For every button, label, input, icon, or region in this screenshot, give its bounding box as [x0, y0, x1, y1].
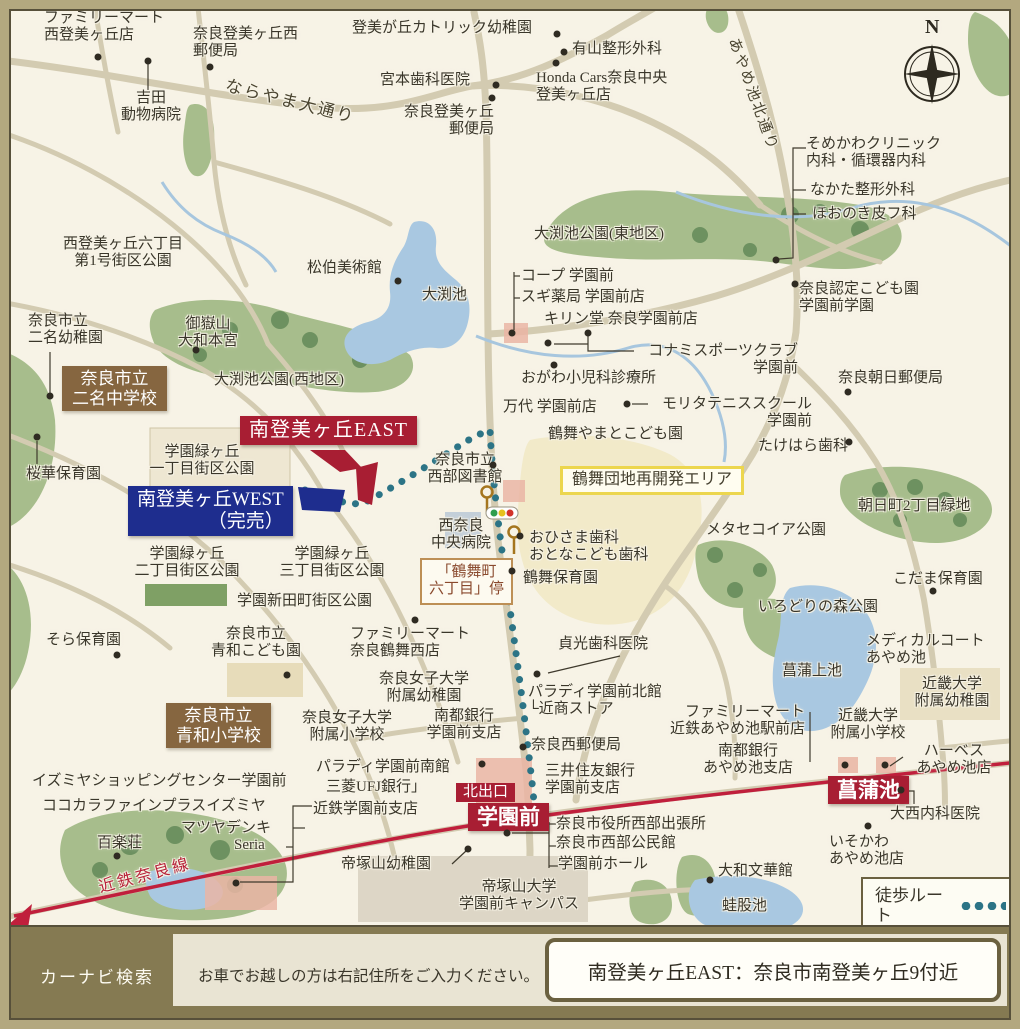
label-matsuya-denki: マツヤデンキ: [181, 820, 271, 837]
badge-seiwa-elementary: 奈良市立 青和小学校: [166, 703, 271, 748]
label-city-office-seibu: 奈良市役所西部出張所: [556, 816, 706, 833]
label-narajoshi-kindergarten: 奈良女子大学 附属幼稚園: [368, 671, 480, 706]
label-naráyama-odori-road: ならやま大通り: [223, 76, 357, 127]
poi-dot: [930, 588, 937, 595]
car-navi-notice: お車でお越しの方は右記住所をご入力ください。: [198, 964, 539, 986]
poi-dot: [233, 880, 240, 887]
label-ayameike-kita-dori-road: あやめ池北通り: [724, 36, 781, 154]
label-nara-nintei-kodomoen: 奈良認定こども園 学園前学園: [799, 281, 919, 316]
label-obuchi-pond: 大渕池: [422, 287, 467, 304]
label-paradis-minamikan: パラディ学園前南館: [316, 759, 450, 776]
label-tezukayama-univ: 帝塚山大学 学園前キャンパス: [446, 879, 592, 914]
label-kintetsu-gakuenmae-branch: 近鉄学園前支店: [313, 801, 418, 818]
poi-dot: [95, 54, 102, 61]
label-obuchi-park-west: 大渕池公園(西地区): [214, 372, 344, 389]
poi-dot: [509, 568, 516, 575]
badge-nimyo-junior-high: 奈良市立 二名中学校: [62, 366, 167, 411]
station-gakuenmae: 学園前: [468, 803, 549, 831]
poi-dot: [489, 95, 496, 102]
poi-dot: [842, 762, 849, 769]
poi-dot: [561, 49, 568, 56]
badge-minamitomigaoka-east: 南登美ヶ丘EAST: [240, 416, 417, 445]
box-tsurumaicho-6-busstop: 「鶴舞町 六丁目」停: [420, 558, 513, 605]
label-kintetsu-nara-line: 近鉄奈良線: [97, 855, 194, 898]
poi-dot: [412, 617, 419, 624]
label-kindai-elementary: 近畿大学 附属小学校: [820, 708, 916, 743]
label-miyamoto-dental: 宮本歯科医院: [380, 72, 470, 89]
label-kirindo: キリン堂 奈良学園前店: [544, 311, 698, 328]
label-nanto-bank-gakuenmae: 南都銀行 学園前支店: [420, 708, 508, 743]
badge-kita-deguchi: 北出口: [456, 783, 515, 802]
label-takehara-dental: たけはら歯科: [758, 438, 848, 455]
poi-dot: [898, 787, 905, 794]
label-honda-cars: Honda Cars奈良中央 登美ヶ丘店: [536, 70, 667, 105]
poi-dot: [882, 762, 889, 769]
poi-dot: [520, 744, 527, 751]
walk-route-legend-dots: [960, 902, 1006, 910]
label-shohaku-museum: 松伯美術館: [307, 260, 382, 277]
label-nakata-seikei: なかた整形外科: [810, 182, 915, 199]
label-seiwa-kodomoen: 奈良市立 青和こども園: [200, 626, 312, 661]
label-tomigaoka-catholic-kindergarten: 登美が丘カトリック幼稚園: [352, 20, 532, 37]
label-sugi-pharmacy: スギ薬局 学園前店: [521, 289, 645, 306]
poi-dot: [479, 761, 486, 768]
label-onishi-clinic: 大西内科医院: [890, 806, 980, 823]
label-mufg-bank: 三菱UFJ銀行」: [326, 779, 426, 796]
label-seibu-kominkan: 奈良市西部公民館: [556, 835, 676, 852]
label-ogawa-pediatrics: おがわ小児科診療所: [521, 370, 656, 387]
label-asahicho-2-ryokuchi: 朝日町2丁目緑地: [858, 498, 971, 515]
label-coop-gakuenmae: コープ 学園前: [521, 268, 614, 285]
label-narajoshi-elementary: 奈良女子大学 附属小学校: [291, 710, 403, 745]
poi-dot: [845, 389, 852, 396]
site-address-box: 南登美ヶ丘EAST：奈良市南登美ヶ丘9付近: [545, 938, 1001, 1002]
label-hoonoki-hifuka: ほおのき皮フ科: [812, 206, 917, 223]
poi-dot: [207, 64, 214, 71]
label-nara-tomigaoka-nishi-post: 奈良登美ヶ丘西 郵便局: [193, 26, 298, 61]
poi-dot: [145, 58, 152, 65]
poi-dot: [624, 401, 631, 408]
label-obuchi-park-east: 大渕池公園(東地区): [534, 226, 664, 243]
label-kodama-hoikuen: こだま保育園: [893, 571, 983, 588]
poi-dot: [193, 347, 200, 354]
label-ariyama-seikei: 有山整形外科: [572, 41, 662, 58]
label-irodori-forest-park: いろどりの森公園: [758, 599, 878, 616]
label-nanto-bank-ayameike: 南都銀行 あやめ池支店: [694, 743, 802, 778]
label-cocokara-fine: ココカラファインプラスイズミヤ: [42, 798, 266, 815]
label-medical-court-ayameike: メディカルコート あやめ池: [866, 633, 985, 668]
poi-dot: [551, 362, 558, 369]
car-navi-label: カーナビ検索: [40, 963, 154, 988]
label-smbc: 三井住友銀行 学園前支店: [545, 763, 635, 798]
access-map: ファミリーマート 西登美ヶ丘店奈良登美ヶ丘西 郵便局吉田 動物病院ならやま大通り…: [0, 0, 1020, 1029]
label-mitakesan-yamato-hongu: 御嶽山 大和本宮: [166, 316, 250, 351]
poi-dot: [114, 853, 121, 860]
label-familymart-tsurumai-nishi: ファミリーマート 奈良鶴舞西店: [350, 626, 470, 661]
label-gakuen-midorigaoka-2-park: 学園緑ヶ丘 二丁目街区公園: [124, 546, 250, 581]
label-tsurumai-yamato-kodomoen: 鶴舞やまとこども園: [548, 426, 683, 443]
label-gakuenmae-hall: 学園前ホール: [558, 856, 648, 873]
poi-dot: [47, 393, 54, 400]
poi-dot: [114, 652, 121, 659]
poi-dot: [585, 330, 592, 337]
label-sadamitsu-dental: 貞光歯科医院: [558, 636, 648, 653]
label-ouka-hoikuen: 桜華保育園: [26, 466, 101, 483]
label-seibu-library: 奈良市立 西部図書館: [412, 452, 518, 487]
label-seria: Seria: [234, 837, 265, 854]
label-ohisama-dental: おひさま歯科 おとなこども歯科: [529, 530, 649, 565]
poi-dot: [545, 340, 552, 347]
label-izumiya-sc: イズミヤショッピングセンター学園前: [32, 773, 287, 790]
label-gakuen-midorigaoka-1-park: 学園緑ヶ丘 一丁目街区公園: [140, 444, 264, 479]
label-harves-ayameike: ハーベス あやめ池店: [901, 743, 1007, 778]
label-paradis-kitakan: パラディ学園前北館 └近商ストア: [528, 684, 662, 719]
poi-dot: [395, 278, 402, 285]
poi-dot: [792, 281, 799, 288]
label-nimyo-kindergarten: 奈良市立 二名幼稚園: [28, 313, 103, 348]
label-familymart-ayameike: ファミリーマート 近鉄あやめ池駅前店: [653, 704, 805, 739]
poi-dot: [493, 82, 500, 89]
poi-dot: [490, 462, 497, 469]
label-nishinara-chuo-hospital: 西奈良 中央病院: [422, 518, 500, 553]
label-gakuen-shindencho-park: 学園新田町街区公園: [237, 593, 372, 610]
poi-dot: [846, 439, 853, 446]
label-metasequoia-park: メタセコイア公園: [706, 522, 826, 539]
label-mandai: 万代 学園前店: [503, 399, 597, 416]
badge-minamitomigaoka-west: 南登美ヶ丘WEST （完売）: [128, 486, 293, 536]
poi-dot: [865, 823, 872, 830]
label-gakuen-midorigaoka-3-park: 学園緑ヶ丘 三丁目街区公園: [268, 546, 396, 581]
poi-dot: [517, 533, 524, 540]
poi-dot: [553, 60, 560, 67]
label-nara-asahi-post: 奈良朝日郵便局: [838, 370, 943, 387]
label-shobu-kami-pond: 菖蒲上池: [782, 663, 842, 680]
label-yamato-bunkakan: 大和文華館: [718, 863, 793, 880]
poi-dot: [554, 31, 561, 38]
label-sora-hoikuen: そら保育園: [46, 632, 121, 649]
poi-dot: [773, 257, 780, 264]
label-tsurumai-hoikuen: 鶴舞保育園: [523, 570, 598, 587]
car-navi-footer: カーナビ検索 お車でお越しの方は右記住所をご入力ください。 南登美ヶ丘EAST：…: [10, 925, 1010, 1021]
box-tsurumai-redevelopment: 鶴舞団地再開発エリア: [560, 466, 744, 495]
label-compass-n: N: [925, 16, 939, 39]
poi-dot: [509, 330, 516, 337]
poi-dot: [534, 671, 541, 678]
poi-dot: [707, 877, 714, 884]
label-isokawa-ayameike: いそかわ あやめ池店: [829, 834, 904, 869]
label-familymart-nishitomigaoka: ファミリーマート 西登美ヶ丘店: [44, 10, 164, 45]
label-nara-tomigaoka-post: 奈良登美ヶ丘 郵便局: [390, 104, 494, 139]
label-nara-nishi-post: 奈良西郵便局: [531, 737, 621, 754]
label-nishitomigaoka-6-park: 西登美ヶ丘六丁目 第1号街区公園: [52, 236, 194, 271]
label-hyakurakuso: 百楽荘: [97, 835, 142, 852]
label-tezukayama-kindergarten: 帝塚山幼稚園: [341, 856, 431, 873]
label-kindai-kindergarten: 近畿大学 附属幼稚園: [900, 676, 1004, 711]
map-labels-layer: ファミリーマート 西登美ヶ丘店奈良登美ヶ丘西 郵便局吉田 動物病院ならやま大通り…: [0, 0, 1020, 1029]
label-somekawa-clinic: そめかわクリニック 内科・循環器内科: [806, 136, 941, 171]
poi-dot: [465, 846, 472, 853]
label-kaerumata-pond: 蛙股池: [722, 898, 767, 915]
label-konami-sports: コナミスポーツクラブ 学園前: [634, 343, 798, 378]
poi-dot: [284, 672, 291, 679]
poi-dot: [34, 434, 41, 441]
label-yoshida-animal-hospital: 吉田 動物病院: [110, 90, 192, 125]
poi-dot: [504, 830, 511, 837]
